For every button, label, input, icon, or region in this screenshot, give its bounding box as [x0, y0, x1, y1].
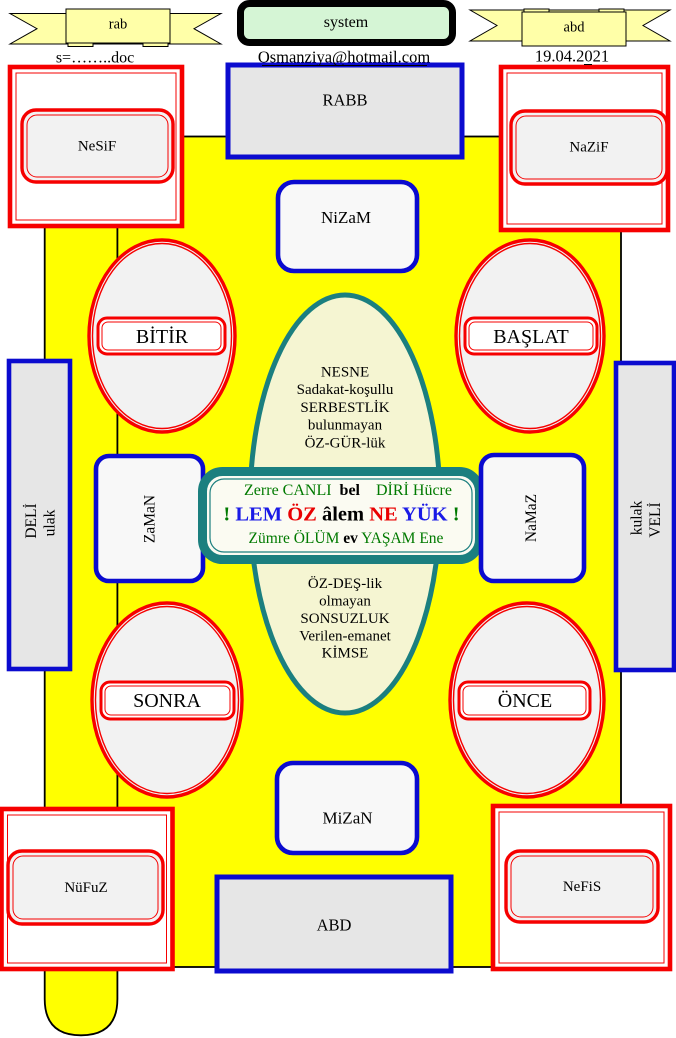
svg-text:19.04.2021: 19.04.2021 [535, 47, 609, 66]
svg-text:KİMSE: KİMSE [322, 646, 369, 662]
svg-text:Verilen-emanet: Verilen-emanet [299, 629, 391, 645]
svg-text:NaZiF: NaZiF [569, 140, 608, 156]
svg-text:MiZaN: MiZaN [322, 809, 372, 828]
svg-text:ÖNCE: ÖNCE [498, 689, 552, 712]
svg-text:ÖZ-DEŞ-lik: ÖZ-DEŞ-lik [308, 575, 383, 592]
svg-text:NiZaM: NiZaM [321, 208, 371, 227]
svg-text:NüFuZ: NüFuZ [64, 880, 107, 896]
svg-text:Osmanziya@hotmail.com: Osmanziya@hotmail.com [258, 48, 431, 67]
svg-text:Zerre CANLI bel DİRİ Hücre: Zerre CANLI bel DİRİ Hücre [244, 481, 452, 499]
svg-text:ABD: ABD [317, 916, 352, 935]
svg-text:RABB: RABB [323, 91, 368, 110]
svg-text:NaMaZ: NaMaZ [523, 494, 540, 542]
svg-text:SERBESTLİK: SERBESTLİK [300, 400, 389, 416]
svg-text:BAŞLAT: BAŞLAT [493, 326, 569, 348]
svg-text:BİTİR: BİTİR [136, 325, 189, 348]
svg-text:bulunmayan: bulunmayan [308, 418, 383, 434]
svg-text:olmayan: olmayan [319, 594, 371, 610]
svg-text:rab: rab [109, 17, 128, 33]
svg-text:VELİ: VELİ [647, 502, 664, 537]
svg-text:system: system [324, 14, 369, 31]
svg-text:ZaMaN: ZaMaN [142, 495, 159, 543]
svg-text:ulak: ulak [42, 509, 59, 536]
svg-text:Zümre ÖLÜM ev YAŞAM Ene: Zümre ÖLÜM ev YAŞAM Ene [249, 530, 444, 547]
svg-text:NeSiF: NeSiF [78, 139, 116, 155]
svg-text:abd: abd [564, 20, 586, 36]
svg-text:SONRA: SONRA [133, 690, 201, 712]
svg-text:kulak: kulak [629, 501, 646, 536]
svg-text:ÖZ-GÜR-lük: ÖZ-GÜR-lük [305, 435, 386, 452]
svg-text:SONSUZLUK: SONSUZLUK [300, 611, 389, 627]
svg-text:NeFiS: NeFiS [563, 879, 601, 895]
svg-text:Sadakat-koşullu: Sadakat-koşullu [297, 382, 394, 398]
svg-text:NESNE: NESNE [321, 365, 369, 381]
svg-text:! LEM ÖZ âlem NE YÜK !: ! LEM ÖZ âlem NE YÜK ! [223, 503, 459, 526]
svg-text:s=……..doc: s=……..doc [56, 50, 134, 67]
svg-text:DELİ: DELİ [23, 503, 40, 538]
